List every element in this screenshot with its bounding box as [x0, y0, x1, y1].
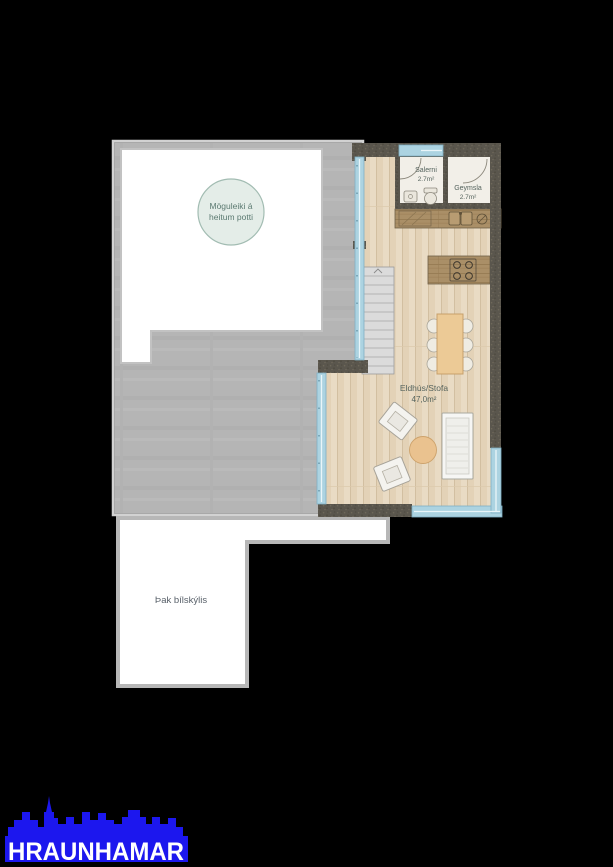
- dining-set: [427, 314, 473, 374]
- logo-text: HRAUNHAMAR: [8, 838, 184, 866]
- storage-area-label: 2.7m²: [460, 194, 477, 201]
- hot-tub-label-line1: Möguleiki á: [210, 201, 253, 211]
- hot-tub-label-line2: heitum potti: [209, 212, 253, 222]
- floorplan-drawing: Möguleiki á heitum potti Þak bílskýlis: [0, 0, 613, 867]
- sofa: [442, 413, 473, 479]
- floorplan-page: Möguleiki á heitum potti Þak bílskýlis: [0, 0, 613, 867]
- carport-roof-label: Þak bílskýlis: [155, 595, 208, 606]
- bathroom-sink-icon: [404, 191, 417, 202]
- faucet-icon: [459, 212, 462, 215]
- wall-bottom-left: [318, 504, 412, 517]
- kitchen-counter: [395, 209, 501, 228]
- partition-toilet-left: [395, 157, 400, 203]
- partition-toilet-storage: [443, 157, 448, 203]
- wall-step: [318, 360, 368, 373]
- living-room-area-label: 47,0m²: [412, 395, 437, 404]
- sink-bowl-right-icon: [461, 212, 472, 225]
- staircase: [362, 267, 394, 374]
- toilet-label: Salerni: [415, 167, 437, 174]
- coffee-table: [410, 437, 437, 464]
- partition-below-rooms: [395, 203, 501, 209]
- wall-right: [490, 143, 501, 448]
- sink-bowl-left-icon: [449, 212, 460, 225]
- toilet-area-label: 2.7m²: [418, 176, 435, 183]
- kitchen-island: [428, 256, 490, 284]
- storage-label: Geymsla: [454, 185, 482, 192]
- living-room-label: Eldhús/Stofa: [400, 383, 448, 393]
- toilet-bowl-icon: [425, 193, 437, 205]
- dining-table: [437, 314, 463, 374]
- hot-tub-area: Möguleiki á heitum potti: [121, 149, 322, 363]
